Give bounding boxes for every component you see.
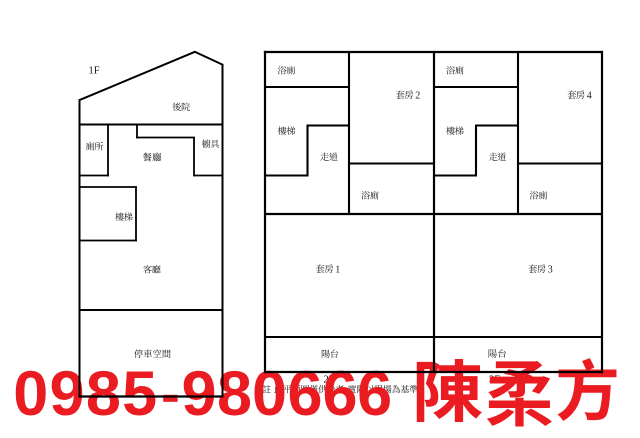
svg-text:2: 2: [415, 90, 420, 101]
svg-text:3: 3: [548, 264, 553, 275]
svg-text:1: 1: [335, 264, 340, 275]
svg-text:4: 4: [587, 90, 592, 101]
svg-text:1F: 1F: [88, 66, 99, 77]
svg-text:0985980666: 0985980666: [13, 359, 392, 429]
